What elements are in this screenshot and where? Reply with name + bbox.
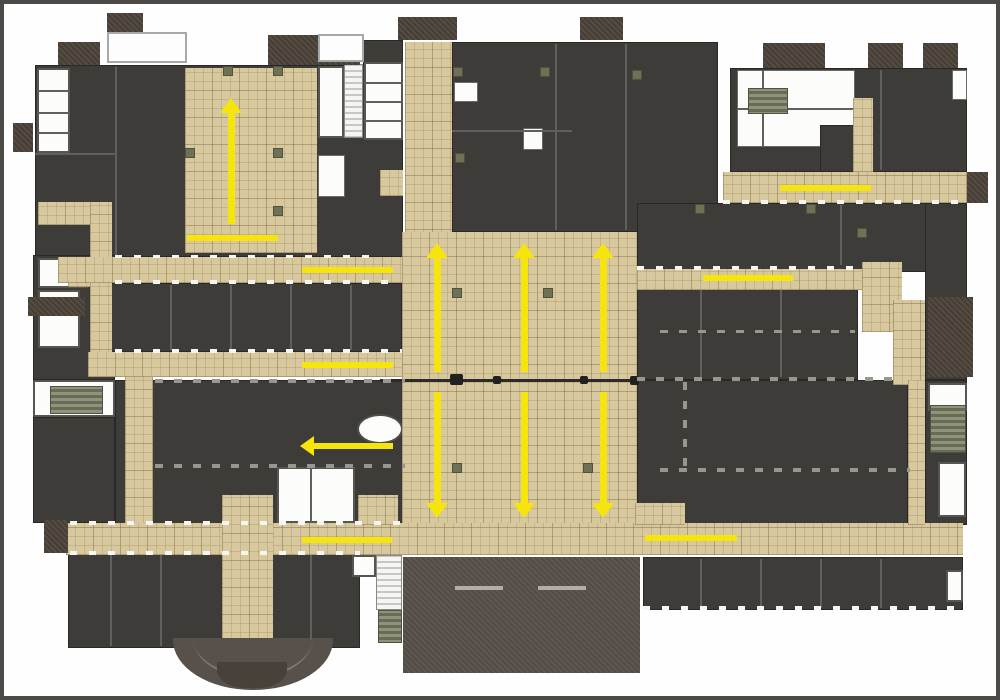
floor-plan bbox=[0, 0, 1000, 700]
plan-frame bbox=[0, 0, 1000, 700]
